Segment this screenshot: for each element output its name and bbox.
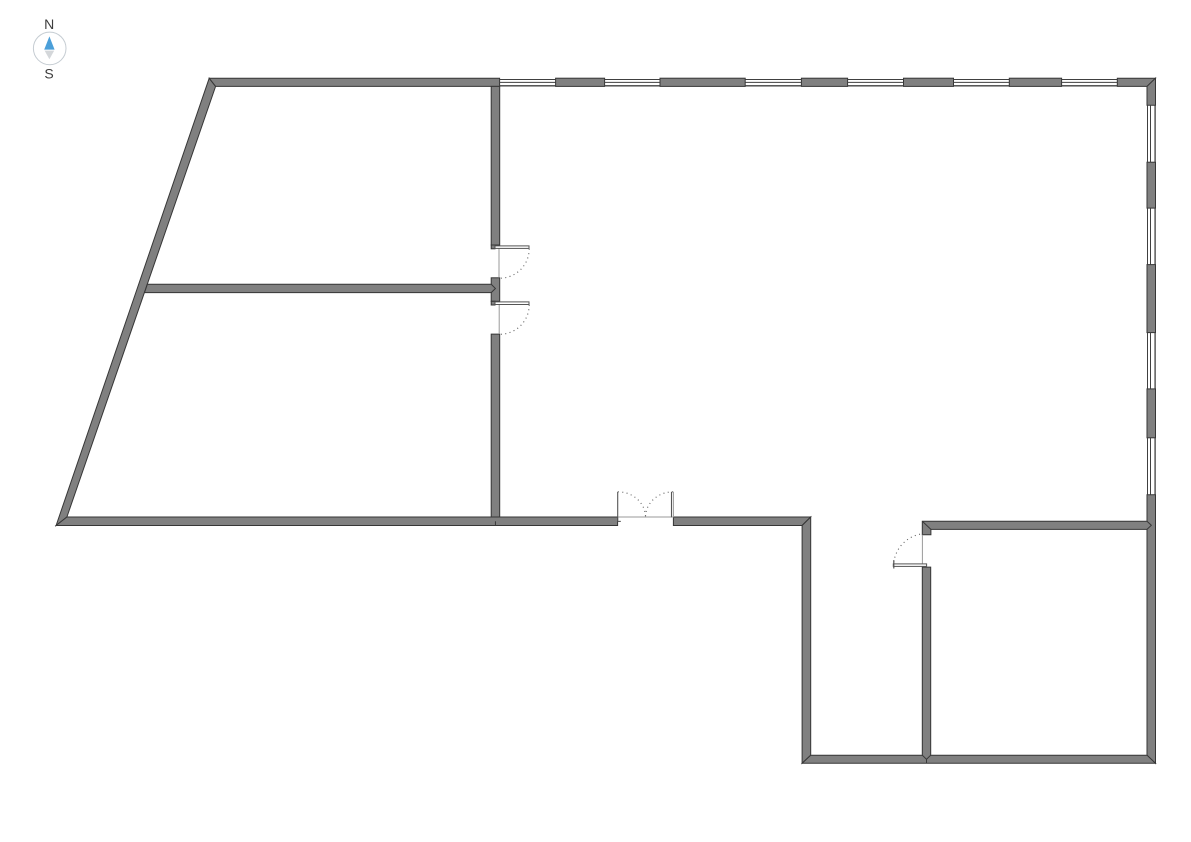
svg-text:S: S <box>44 66 53 82</box>
svg-text:N: N <box>44 16 54 32</box>
